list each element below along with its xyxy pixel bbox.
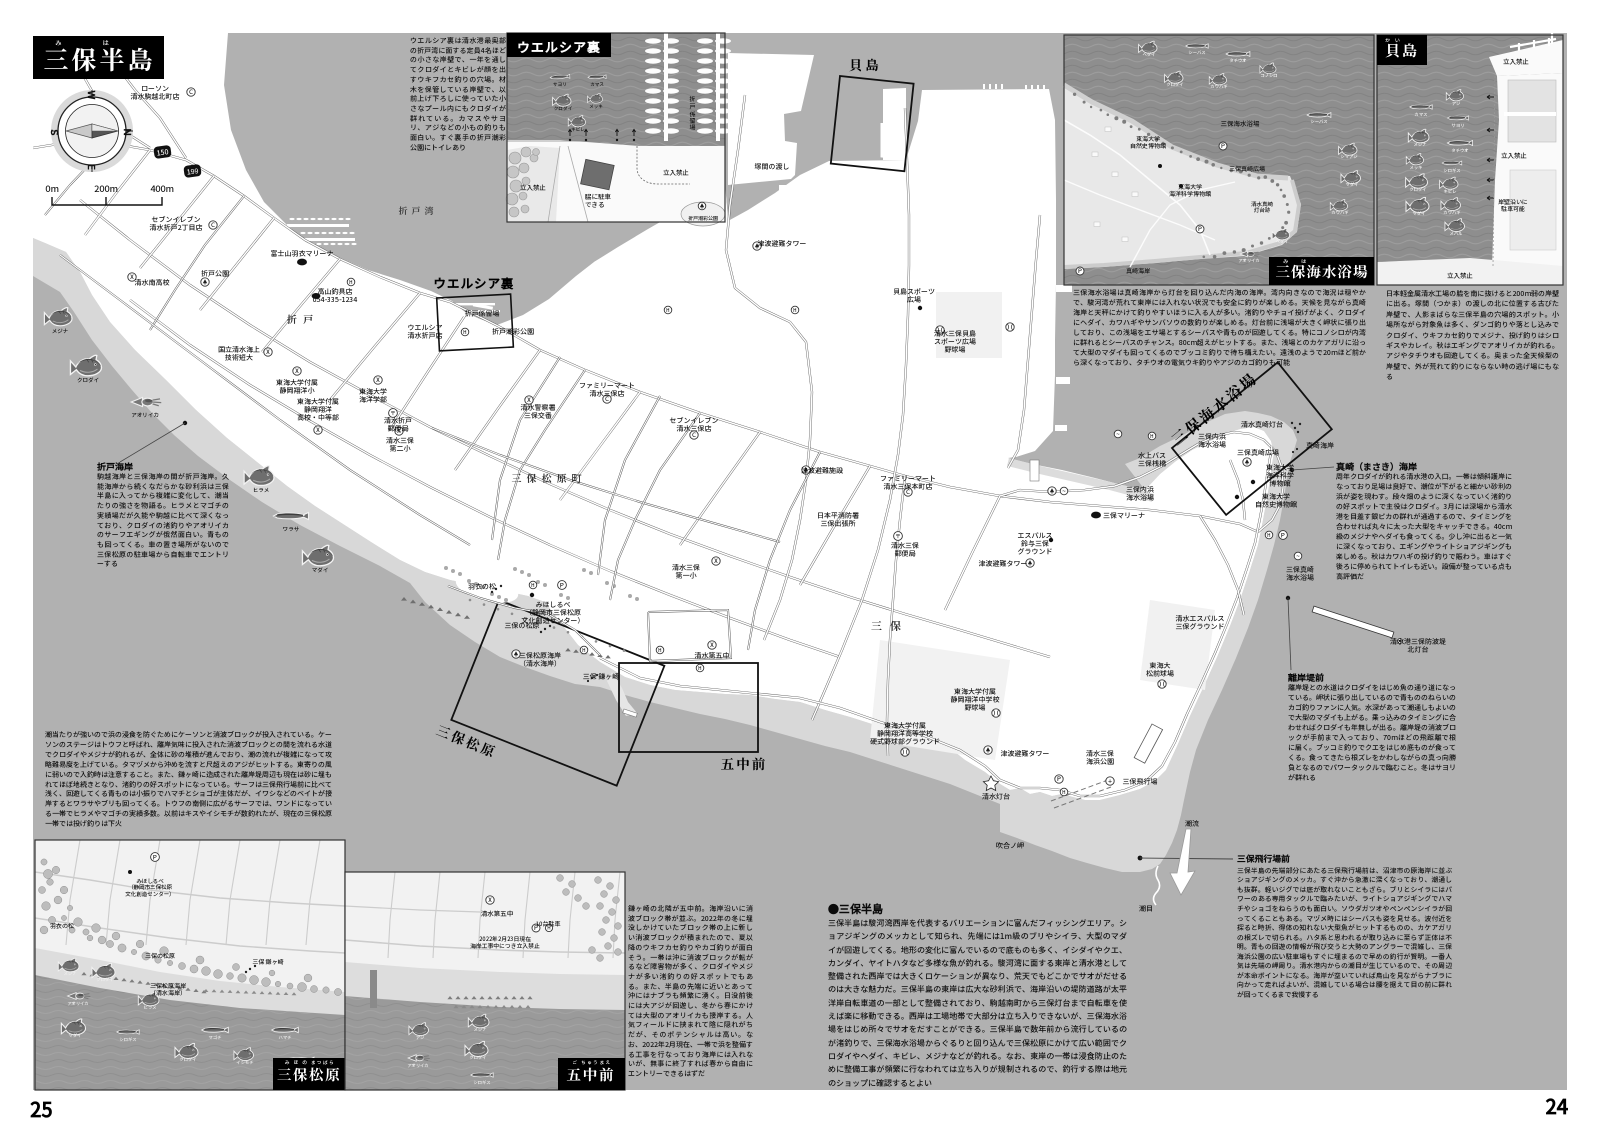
- svg-text:サヨリ: サヨリ: [553, 82, 567, 88]
- svg-text:P: P: [560, 580, 564, 589]
- svg-text:X: X: [488, 895, 492, 904]
- svg-text:P: P: [1078, 266, 1082, 275]
- svg-text:P: P: [1221, 141, 1225, 150]
- svg-text:ヘダイ: ヘダイ: [1143, 52, 1156, 58]
- svg-text:C: C: [189, 87, 193, 96]
- svg-text:150: 150: [156, 147, 169, 159]
- svg-text:H: H: [1062, 789, 1066, 796]
- svg-text:シーバス: シーバス: [1310, 119, 1327, 125]
- svg-text:X: X: [376, 375, 380, 384]
- svg-text:H: H: [698, 665, 702, 672]
- svg-text:メバル: メバル: [1450, 231, 1464, 237]
- svg-text:アオリイカ: アオリイカ: [67, 1001, 88, 1007]
- svg-text:S: S: [48, 129, 63, 136]
- svg-text:キビレ: キビレ: [571, 126, 585, 133]
- svg-text:H: H: [658, 647, 662, 654]
- svg-text:メッキ: メッキ: [589, 104, 603, 110]
- svg-text:カマス: カマス: [590, 82, 604, 88]
- svg-text:H: H: [582, 647, 586, 654]
- svg-text:W: W: [85, 90, 100, 100]
- svg-text:メッキ: メッキ: [1410, 165, 1423, 171]
- svg-text:コノシロ: コノシロ: [1260, 73, 1277, 79]
- svg-text:イシモチ: イシモチ: [236, 1060, 254, 1066]
- svg-text:マダイ: マダイ: [312, 566, 329, 574]
- svg-text:クロダイ: クロダイ: [77, 376, 100, 384]
- svg-text:アジ: アジ: [416, 1035, 425, 1041]
- svg-text:〒: 〒: [895, 532, 900, 540]
- svg-text:クロダイ: クロダイ: [96, 977, 113, 983]
- svg-text:マダイ: マダイ: [1346, 182, 1359, 188]
- svg-text:E: E: [85, 164, 100, 170]
- svg-text:H: H: [349, 279, 353, 286]
- svg-text:X: X: [710, 640, 714, 649]
- svg-text:サヨリ: サヨリ: [1452, 123, 1465, 129]
- svg-text:メジナ: メジナ: [64, 971, 78, 977]
- svg-text:タチウオ: タチウオ: [1229, 58, 1247, 64]
- svg-text:カワハギ: カワハギ: [1331, 210, 1349, 216]
- svg-text:N: N: [121, 128, 136, 135]
- svg-text:ワラサ: ワラサ: [283, 525, 300, 533]
- svg-text:シロギス: シロギス: [473, 1080, 490, 1086]
- svg-text:マゴチ: マゴチ: [209, 1035, 223, 1041]
- svg-text:P: P: [1198, 224, 1202, 233]
- svg-text:H: H: [666, 307, 670, 314]
- svg-text:アオリイカ: アオリイカ: [131, 411, 159, 419]
- svg-text:クロダイ: クロダイ: [1409, 187, 1426, 193]
- svg-text:X: X: [266, 347, 270, 356]
- svg-text:シーバス: シーバス: [1188, 50, 1205, 56]
- svg-text:シロギス: シロギス: [119, 1037, 136, 1043]
- svg-text:マダイ: マダイ: [69, 1033, 82, 1039]
- svg-text:~: ~: [1296, 551, 1300, 560]
- svg-text:アジ: アジ: [1452, 101, 1461, 107]
- svg-text:H: H: [463, 329, 467, 336]
- svg-text:シロギス: シロギス: [1443, 168, 1460, 174]
- svg-text:199: 199: [186, 166, 199, 178]
- svg-text:シマアジ: シマアジ: [1340, 154, 1358, 160]
- svg-text:X: X: [316, 425, 320, 434]
- svg-text:メジナ: メジナ: [474, 1027, 488, 1033]
- svg-text:メジナ: メジナ: [52, 327, 69, 335]
- svg-text:~: ~: [1062, 486, 1066, 495]
- svg-text:H: H: [1267, 532, 1271, 539]
- svg-text:~: ~: [1116, 429, 1120, 438]
- svg-text:X: X: [295, 366, 299, 375]
- svg-text:タチウオ: タチウオ: [1451, 148, 1469, 154]
- svg-text:アオリイカ: アオリイカ: [407, 1063, 428, 1069]
- svg-text:P: P: [1281, 530, 1285, 539]
- svg-text:P: P: [153, 852, 157, 861]
- svg-text:クロダイ: クロダイ: [554, 106, 573, 112]
- svg-text:ヒラメ: ヒラメ: [253, 486, 270, 494]
- svg-text:ハマチ: ハマチ: [279, 1035, 293, 1041]
- svg-text:カマス: カマス: [1415, 112, 1428, 118]
- svg-text:アオリイカ: アオリイカ: [1238, 258, 1259, 264]
- svg-text:+: +: [1108, 777, 1112, 787]
- svg-text:カワハギ: カワハギ: [1210, 84, 1228, 90]
- svg-text:キビレ: キビレ: [1444, 189, 1458, 195]
- svg-text:H: H: [531, 582, 535, 589]
- svg-text:クロダイ: クロダイ: [1166, 82, 1183, 88]
- svg-text:クロダイ: クロダイ: [179, 1057, 196, 1063]
- svg-text:カワハギ: カワハギ: [1443, 210, 1461, 216]
- svg-text:マダイ: マダイ: [1413, 211, 1426, 217]
- svg-text:P: P: [1057, 774, 1061, 783]
- svg-text:C: C: [211, 220, 215, 229]
- svg-text:X: X: [714, 556, 718, 565]
- svg-text:メジナ: メジナ: [1414, 142, 1428, 148]
- svg-text:ヒラメ: ヒラメ: [144, 1005, 157, 1011]
- svg-text:H: H: [793, 307, 797, 314]
- svg-text:ヘダイ: ヘダイ: [1276, 239, 1289, 245]
- svg-text:クロダイ: クロダイ: [469, 1055, 486, 1061]
- svg-text:H: H: [1150, 433, 1154, 440]
